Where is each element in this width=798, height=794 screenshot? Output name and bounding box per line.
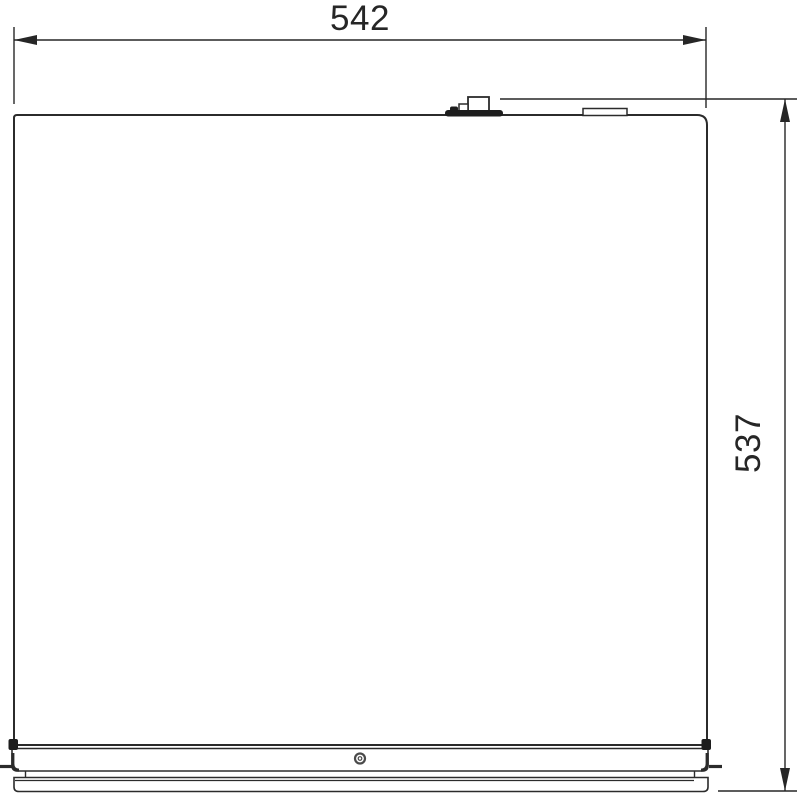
arrow-up-icon — [780, 99, 790, 122]
latch-knob-outline — [468, 97, 489, 111]
technical-drawing: 542 537 — [0, 0, 798, 794]
top-edge-detail-rect — [583, 109, 627, 116]
cabinet-outline — [14, 115, 707, 745]
drawing-canvas: 542 537 — [0, 0, 798, 794]
width-dimension-label: 542 — [330, 0, 390, 38]
width-dimension-group — [14, 27, 706, 108]
cabinet-body-group — [14, 97, 707, 745]
arrow-right-icon — [683, 35, 706, 45]
screw-head-group — [355, 754, 365, 764]
arrow-down-icon — [780, 768, 790, 791]
arrow-left-icon — [14, 35, 37, 45]
screw-head-icon — [355, 754, 365, 764]
corner-tab-left — [9, 739, 19, 750]
latch-left-nub — [450, 107, 458, 112]
base-strip-outline — [14, 778, 708, 792]
height-dimension-label: 537 — [729, 413, 768, 473]
latch-step-outline — [459, 104, 468, 111]
corner-tab-right — [702, 739, 712, 750]
